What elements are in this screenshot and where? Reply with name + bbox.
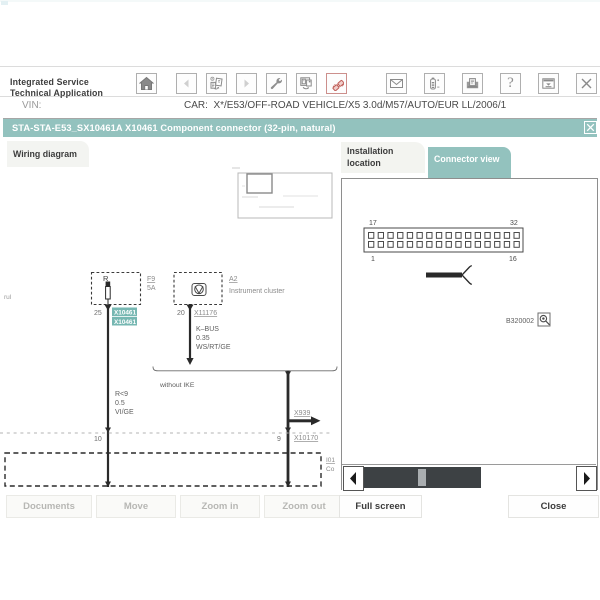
svg-text:X939: X939: [294, 410, 310, 417]
svg-text:1: 1: [371, 256, 375, 263]
svg-text:F9: F9: [147, 276, 155, 283]
svg-text:9: 9: [277, 436, 281, 443]
svg-text:Instrument cluster: Instrument cluster: [229, 288, 285, 295]
svg-text:32: 32: [510, 220, 518, 227]
svg-text:K–BUS: K–BUS: [196, 326, 219, 333]
svg-text:I01: I01: [326, 457, 335, 464]
svg-text:R<9: R<9: [115, 391, 128, 398]
svg-text:VI/GE: VI/GE: [115, 409, 134, 416]
svg-text:5A: 5A: [147, 285, 156, 292]
svg-text:X10170: X10170: [294, 435, 318, 442]
svg-text:16: 16: [509, 256, 517, 263]
svg-text:rul: rul: [4, 294, 12, 301]
svg-text:0.35: 0.35: [196, 335, 210, 342]
svg-text:0.5: 0.5: [115, 400, 125, 407]
svg-text:17: 17: [369, 220, 377, 227]
svg-text:WS/RT/GE: WS/RT/GE: [196, 344, 231, 351]
svg-text:20: 20: [177, 310, 185, 317]
svg-text:X10461: X10461: [114, 319, 136, 326]
svg-text:B320002: B320002: [506, 318, 534, 325]
svg-text:Co: Co: [326, 466, 335, 473]
svg-text:without IKE: without IKE: [159, 382, 195, 389]
svg-text:X11176: X11176: [194, 310, 217, 317]
svg-text:A2: A2: [229, 276, 238, 283]
svg-text:10: 10: [94, 436, 102, 443]
svg-text:X10461: X10461: [114, 309, 136, 316]
svg-text:25: 25: [94, 310, 102, 317]
